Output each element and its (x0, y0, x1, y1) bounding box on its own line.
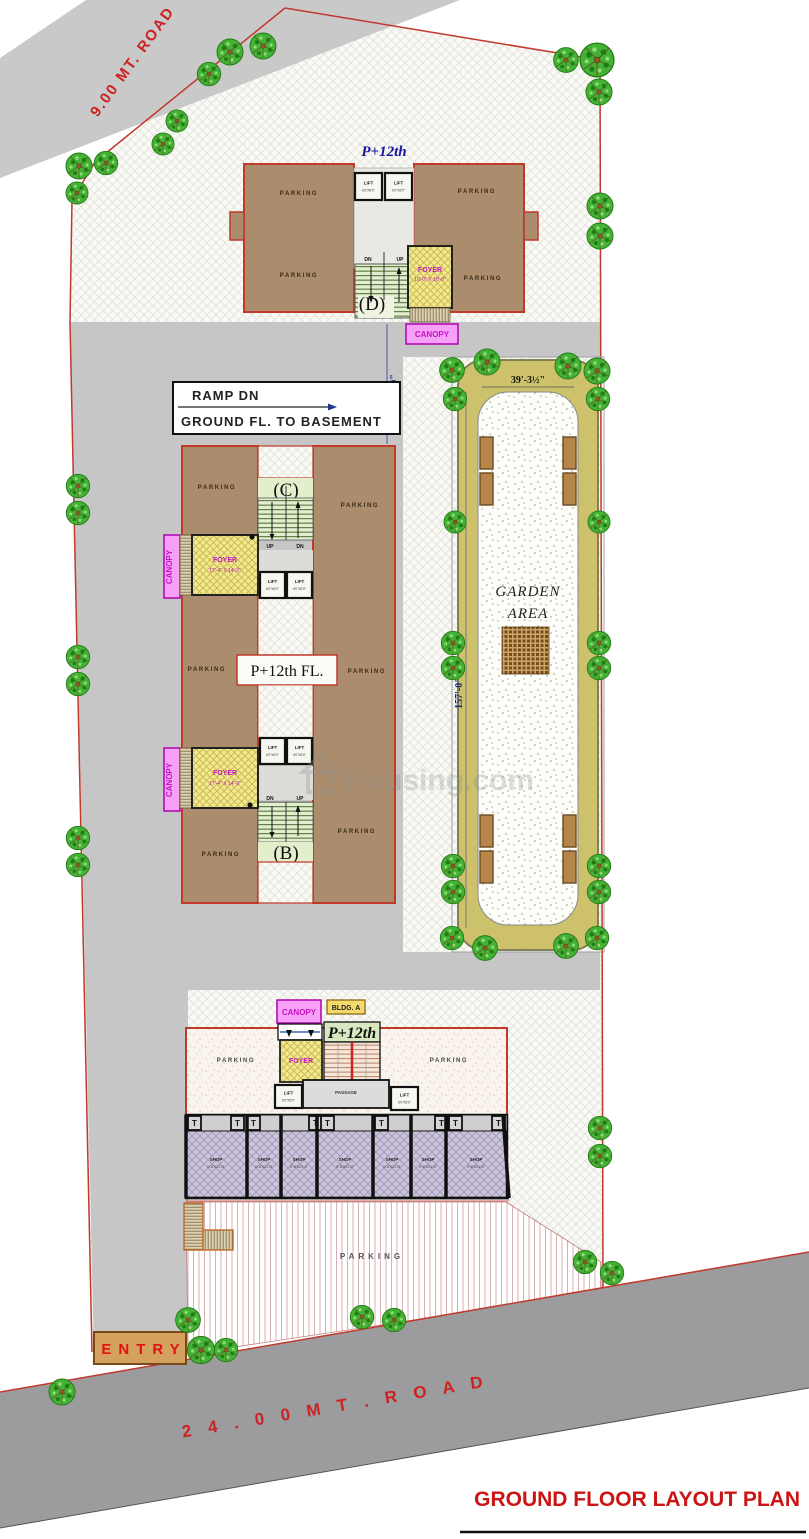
tree-icon (441, 854, 464, 877)
tree-icon (187, 1336, 214, 1363)
tree-icon (588, 511, 610, 533)
tree-icon (197, 62, 220, 85)
garden-width-dim: 39'-3½" (511, 375, 545, 386)
shop-label: SHOP (258, 1157, 271, 1162)
bldg-b-door-pivot (247, 802, 252, 807)
bldg-bc-mid-indent2 (258, 685, 313, 738)
page-title: GROUND FLOOR LAYOUT PLAN (474, 1488, 800, 1511)
tree-icon (66, 645, 89, 668)
tree-icon (444, 511, 466, 533)
bldg-bc-top-indent (258, 446, 313, 478)
lift-size-label: 6'0"X6'0" (398, 1101, 411, 1105)
tree-icon (587, 223, 613, 249)
lift-label: LIFT (394, 181, 404, 186)
bldg-d-foyer-steps (410, 308, 450, 322)
drawing-title: GROUND FLOOR LAYOUT PLAN (460, 1488, 806, 1532)
parking-label: PARKING (217, 1058, 255, 1064)
bldg-b-foyer-label: FOYER (213, 770, 237, 777)
tree-icon (94, 151, 117, 174)
tree-icon (66, 501, 89, 524)
bldg-d-foyer-label: FOYER (418, 267, 442, 274)
shops-row: TTTTTTTTTSHOP9'-6"X21'-0"SHOP9'-6"X21'-0… (186, 1115, 509, 1201)
bldg-d-left-wing (244, 164, 354, 312)
lift-size-label: 6'0"X6'0" (282, 1099, 295, 1103)
bldg-c-canopy-label: CANOPY (165, 549, 174, 584)
lift-label: LIFT (400, 1093, 410, 1098)
lift-size-label: 6'0"X6'0" (293, 753, 306, 757)
tree-icon (66, 672, 89, 695)
bldg-c-foyer (192, 535, 258, 595)
garden-area: GARDEN AREA 39'-3½" 157'-0" (452, 357, 604, 952)
bldg-b-core-label: (B) (273, 843, 298, 864)
bldg-c-dn-label: DN (296, 544, 304, 550)
tree-icon (587, 880, 610, 903)
bldg-b-foyer-size: 17'-4" X 14'-3" (209, 781, 241, 787)
tree-icon (250, 33, 276, 59)
lift-size-label: 6'0"X6'0" (266, 587, 279, 591)
lift-box: LIFT6'0"X6'0" (275, 1085, 302, 1108)
lift-size-label: 6'0"X6'0" (362, 189, 375, 193)
toilet-box: T (247, 1116, 260, 1130)
tree-icon (441, 631, 464, 654)
tree-icon (473, 936, 498, 961)
bldg-d-right-notch (524, 212, 538, 240)
lift-label: LIFT (295, 745, 305, 750)
lift-box: LIFT6'0"X6'0" (287, 572, 312, 598)
ramp-line1: RAMP DN (192, 388, 259, 403)
bldg-b-dn-label: DN (266, 796, 274, 802)
tree-icon (573, 1250, 596, 1273)
lift-box: LIFT6'0"X6'0" (355, 173, 382, 200)
garden-length-dim: 157'-0" (454, 677, 465, 709)
bldg-d-up-label: UP (397, 257, 405, 263)
tree-icon (66, 182, 88, 204)
tree-icon (474, 349, 500, 375)
tree-icon (217, 39, 243, 65)
tree-icon (176, 1308, 201, 1333)
shop-label: SHOP (339, 1157, 352, 1162)
ground-floor-layout-svg: 9.00 MT. ROAD GARDEN AREA 39'-3½" 157'-0… (0, 0, 809, 1539)
bldg-d-floors-label: P+12th (361, 144, 406, 160)
tree-icon (555, 353, 581, 379)
tree-icon (66, 826, 89, 849)
tree-icon (152, 133, 174, 155)
lift-label: LIFT (295, 579, 305, 584)
bldg-d-foyer-size: 10'-0" X 18'-0" (414, 277, 446, 283)
tree-icon (441, 656, 464, 679)
toilet-label: T (496, 1119, 501, 1128)
lift-label: LIFT (284, 1091, 294, 1096)
tree-icon (440, 358, 465, 383)
shop-size-label: 9'-6"X21'-0" (255, 1165, 273, 1169)
bldg-bc-mid-indent1 (258, 598, 313, 655)
tree-icon (586, 79, 612, 105)
toilet-box: T (375, 1116, 388, 1130)
bldg-c-landing (258, 550, 313, 572)
tree-icon (554, 48, 579, 73)
tree-icon (588, 1144, 611, 1167)
shop-label: SHOP (470, 1157, 483, 1162)
tree-icon (585, 926, 608, 949)
lift-box: LIFT6'0"X6'0" (260, 738, 285, 764)
bldg-d-left-notch (230, 212, 244, 240)
entry-box: ENTRY (94, 1332, 187, 1364)
tree-icon (214, 1338, 237, 1361)
bldg-d-dn-label: DN (364, 257, 372, 263)
bldg-bc-bottom-indent (258, 862, 313, 903)
lift-box: LIFT6'0"X6'0" (287, 738, 312, 764)
shop-label: SHOP (386, 1157, 399, 1162)
bldg-c-foyer-steps (180, 535, 192, 595)
bldg-a-foyer-label: FOYER (289, 1058, 313, 1065)
lift-label: LIFT (268, 579, 278, 584)
lift-label: LIFT (364, 181, 374, 186)
toilet-label: T (192, 1119, 197, 1128)
tree-icon (66, 853, 89, 876)
shop-size-label: 9'-6"X21'-0" (336, 1165, 354, 1169)
tree-icon (382, 1308, 405, 1331)
toilet-label: T (235, 1119, 240, 1128)
lift-box: LIFT6'0"X6'0" (391, 1087, 418, 1110)
tree-icon (66, 153, 92, 179)
parking-label: PARKING (464, 276, 502, 282)
parking-label: PARKING (458, 189, 496, 195)
site-plan-page: 9.00 MT. ROAD GARDEN AREA 39'-3½" 157'-0… (0, 0, 809, 1539)
bldg-d-core-label: (D) (359, 294, 385, 315)
garden-label-line1: GARDEN (495, 584, 560, 600)
toilet-label: T (439, 1119, 444, 1128)
parking-label: PARKING (280, 273, 318, 279)
toilet-label: T (453, 1119, 458, 1128)
tree-icon (587, 854, 610, 877)
watermark-text: Housing.com (344, 764, 534, 797)
shop-size-label: 9'-6"X21'-0" (207, 1165, 225, 1169)
bldg-c-foyer-size: 17'-4" X 14'-3" (209, 568, 241, 574)
tree-icon (49, 1379, 75, 1405)
lift-size-label: 6'0"X6'0" (266, 753, 279, 757)
tree-icon (350, 1305, 373, 1328)
parking-label: PARKING (341, 503, 379, 509)
bldg-a-floors-label: P+12th (327, 1025, 376, 1042)
lift-label: LIFT (268, 745, 278, 750)
bldg-c-up-label: UP (267, 544, 275, 550)
bldg-a-canopy-label: CANOPY (282, 1008, 317, 1017)
tree-icon (441, 880, 464, 903)
ramp-note: RAMP DN GROUND FL. TO BASEMENT (173, 382, 400, 434)
tree-icon (584, 358, 610, 384)
toilet-box: T (321, 1116, 334, 1130)
bldg-c-door-pivot (249, 534, 254, 539)
lift-size-label: 6'0"X6'0" (392, 189, 405, 193)
bldg-b-up-label: UP (297, 796, 305, 802)
toilet-label: T (325, 1119, 330, 1128)
tree-icon (440, 926, 463, 949)
bldg-b-canopy-label: CANOPY (165, 762, 174, 797)
tree-icon (443, 387, 466, 410)
tree-icon (587, 656, 610, 679)
lift-box: LIFT6'0"X6'0" (260, 572, 285, 598)
tree-icon (587, 193, 613, 219)
ramp-line2: GROUND FL. TO BASEMENT (181, 414, 382, 429)
tree-icon (600, 1261, 623, 1284)
tree-icon (166, 110, 188, 132)
bldg-b-foyer (192, 748, 258, 808)
toilet-box: T (188, 1116, 201, 1130)
tree-icon (554, 934, 579, 959)
toilet-label: T (379, 1119, 384, 1128)
building-bc: (C) UP DN P+12th FL. DN UP (B) CANOPY FO… (164, 446, 395, 903)
tree-icon (587, 631, 610, 654)
entry-label: ENTRY (101, 1341, 186, 1358)
shop-size-label: 9'-6"X21'-0" (419, 1165, 437, 1169)
bldg-a-name: BLDG. A (332, 1005, 361, 1012)
parking-label: PARKING (198, 485, 236, 491)
parking-label: PARKING (348, 669, 386, 675)
garden-pergola-grid (502, 627, 549, 674)
shop-size-label: 9'-6"X21'-0" (467, 1165, 485, 1169)
parking-label: PARKING (430, 1058, 468, 1064)
toilet-label: T (251, 1119, 256, 1128)
shop-size-label: 9'-6"X21'-0" (290, 1165, 308, 1169)
tree-icon (588, 1116, 611, 1139)
toilet-box: T (231, 1116, 244, 1130)
bldg-a-passage-label: PASSAGE (335, 1090, 357, 1095)
parking-label: PARKING (280, 191, 318, 197)
garden-label-line2: AREA (507, 606, 549, 622)
bldg-d-canopy-label: CANOPY (415, 330, 450, 339)
bldg-c-foyer-label: FOYER (213, 557, 237, 564)
bldg-b-foyer-steps (180, 748, 192, 808)
shop-size-label: 9'-6"X21'-0" (383, 1165, 401, 1169)
tree-icon (580, 43, 614, 77)
parking-label: PARKING (188, 667, 226, 673)
bldg-bc-floors-label: P+12th FL. (250, 663, 323, 680)
shop-label: SHOP (422, 1157, 435, 1162)
shop-label: SHOP (210, 1157, 223, 1162)
lift-box: LIFT6'0"X6'0" (385, 173, 412, 200)
toilet-box: T (449, 1116, 462, 1130)
parking-label: PARKING (340, 1252, 404, 1261)
tree-icon (586, 387, 609, 410)
tree-icon (66, 474, 89, 497)
parking-label: PARKING (202, 852, 240, 858)
parking-label: PARKING (338, 829, 376, 835)
shop-label: SHOP (293, 1157, 306, 1162)
lift-size-label: 6'0"X6'0" (293, 587, 306, 591)
